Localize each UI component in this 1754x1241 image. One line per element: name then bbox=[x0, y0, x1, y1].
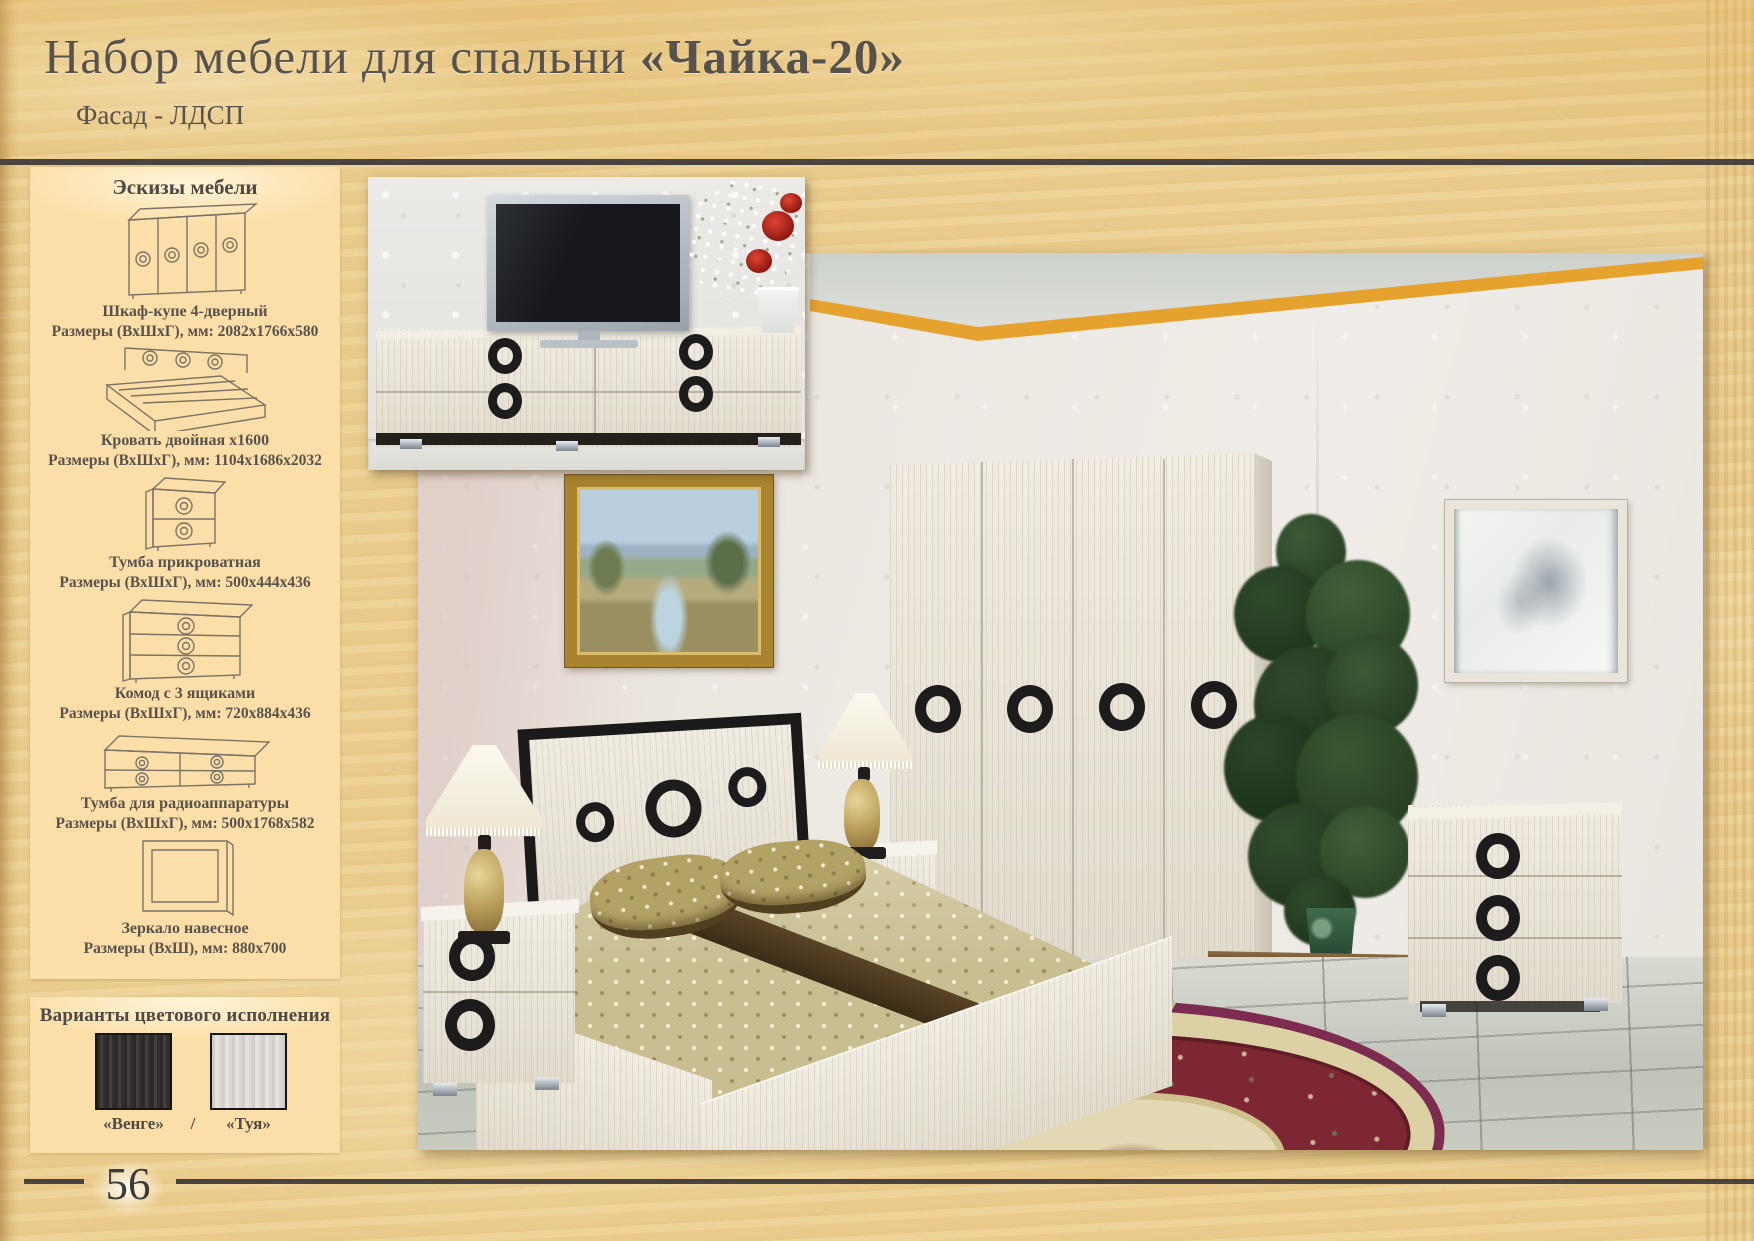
dresser-drawer-seam bbox=[1408, 937, 1622, 939]
sketch-label: Тумба прикроватная bbox=[30, 553, 340, 573]
headboard-ring bbox=[644, 778, 703, 839]
tv-stand-plinth bbox=[376, 433, 801, 445]
wardrobe-ring-handle bbox=[1099, 683, 1145, 731]
photo-ficus-plant bbox=[1218, 508, 1438, 978]
page-number: 56 bbox=[84, 1158, 172, 1210]
tv-screen bbox=[496, 204, 680, 322]
nightstand-sketch-icon bbox=[125, 473, 245, 553]
lamp-base bbox=[464, 849, 504, 933]
inset-flat-tv bbox=[487, 195, 689, 331]
wardrobe-ring-handle bbox=[1007, 685, 1053, 733]
swatch-wenge-label: «Венге» bbox=[95, 1114, 172, 1134]
tv-stand-ring-handle bbox=[488, 338, 522, 374]
tv-stand-foot bbox=[758, 437, 780, 447]
photo-wall-mirror bbox=[1445, 500, 1627, 682]
sketch-label: Шкаф-купе 4-дверный bbox=[30, 302, 340, 322]
footer-rule-right bbox=[176, 1179, 1754, 1184]
nightstand-ring-handle bbox=[445, 999, 495, 1051]
swatch-separator: / bbox=[178, 1114, 208, 1134]
sketch-dims: Размеры (ВхШхГ), мм: 720x884x436 bbox=[30, 704, 340, 723]
dresser-ring-handle bbox=[1476, 955, 1520, 1001]
sketch-dims: Размеры (ВхШхГ), мм: 2082x1766x580 bbox=[30, 322, 340, 341]
lamp-base bbox=[844, 779, 880, 851]
sketch-dims: Размеры (ВхШхГ), мм: 500x1768x582 bbox=[30, 814, 340, 833]
sketch-item-wardrobe: Шкаф-купе 4-дверный Размеры (ВхШхГ), мм:… bbox=[30, 202, 340, 341]
inset-flower-arrangement bbox=[688, 179, 805, 339]
headboard-ring bbox=[727, 766, 767, 808]
tv-stand-foot bbox=[556, 441, 578, 451]
lamp-foot bbox=[458, 931, 510, 944]
sketches-panel-header: Эскизы мебели bbox=[30, 167, 340, 200]
photo-wall-painting bbox=[565, 475, 773, 667]
tv-stand-ring-handle bbox=[488, 383, 522, 419]
sketch-item-tv-stand: Тумба для радиоаппаратуры Размеры (ВхШхГ… bbox=[30, 726, 340, 833]
nightstand-foot bbox=[433, 1083, 457, 1096]
footer-rule-left bbox=[24, 1179, 84, 1184]
tv-base bbox=[540, 340, 638, 348]
swatch-labels-row: «Венге» / «Туя» bbox=[30, 1114, 340, 1144]
sketch-item-mirror: Зеркало навесное Размеры (ВхШ), мм: 880x… bbox=[30, 835, 340, 958]
photo-dresser bbox=[1408, 805, 1622, 1017]
sketch-label: Кровать двойная х1600 bbox=[30, 431, 340, 451]
sketch-label: Комод с 3 ящиками bbox=[30, 684, 340, 704]
tv-stand-foot bbox=[400, 439, 422, 449]
color-variants-panel: Варианты цветового исполнения «Венге» / … bbox=[30, 997, 340, 1153]
flower-pot bbox=[754, 287, 802, 333]
tv-stand-inset-photo bbox=[368, 177, 805, 470]
page-right-wood-streak bbox=[1706, 0, 1754, 1241]
catalog-page: Набор мебели для спальни «Чайка-20» Фаса… bbox=[0, 0, 1754, 1241]
photo-right-table-lamp bbox=[814, 693, 914, 863]
color-swatches-row bbox=[30, 1033, 340, 1110]
red-poppy-flower bbox=[780, 193, 802, 213]
page-header: Набор мебели для спальни «Чайка-20» Фаса… bbox=[0, 0, 1754, 159]
wardrobe-ring-handle bbox=[915, 685, 961, 733]
dresser-shadow bbox=[1420, 1001, 1600, 1012]
wardrobe-door-seam bbox=[1072, 459, 1074, 967]
swatch-tuya bbox=[210, 1033, 287, 1110]
sketch-dims: Размеры (ВхШхГ), мм: 1104x1686x2032 bbox=[30, 451, 340, 470]
sketch-label: Тумба для радиоаппаратуры bbox=[30, 794, 340, 814]
page-left-wood-streak bbox=[0, 0, 18, 1241]
photo-left-table-lamp bbox=[424, 745, 546, 955]
sketch-dims: Размеры (ВхШхГ), мм: 500x444x436 bbox=[30, 573, 340, 592]
double-bed-sketch-icon bbox=[95, 343, 275, 431]
sketch-dims: Размеры (ВхШ), мм: 880x700 bbox=[30, 939, 340, 958]
tv-stand-ring-handle bbox=[679, 334, 713, 370]
page-title: Набор мебели для спальни «Чайка-20» bbox=[44, 28, 905, 85]
dresser-drawer-seam bbox=[1408, 875, 1622, 877]
swatch-wenge bbox=[95, 1033, 172, 1110]
nightstand-drawer-seam bbox=[423, 991, 575, 993]
dresser-ring-handle bbox=[1476, 833, 1520, 879]
sketch-item-dresser: Комод с 3 ящиками Размеры (ВхШхГ), мм: 7… bbox=[30, 594, 340, 723]
page-subtitle: Фасад - ЛДСП bbox=[76, 100, 244, 131]
dresser-ring-handle bbox=[1476, 895, 1520, 941]
dresser-foot bbox=[1422, 1004, 1446, 1017]
mirror-sketch-icon bbox=[125, 835, 245, 919]
header-divider-rule bbox=[0, 159, 1754, 165]
tv-stand-divider bbox=[594, 337, 596, 433]
swatch-tuya-label: «Туя» bbox=[210, 1114, 287, 1134]
wardrobe-door-seam bbox=[1163, 459, 1165, 967]
sketch-label: Зеркало навесное bbox=[30, 919, 340, 939]
furniture-sketches-panel: Эскизы мебели Шкаф-купе 4-дверный Размер… bbox=[30, 167, 340, 979]
page-title-product-name: «Чайка-20» bbox=[640, 29, 905, 84]
tv-stand-sketch-icon bbox=[93, 726, 278, 794]
sketch-item-bed: Кровать двойная х1600 Размеры (ВхШхГ), м… bbox=[30, 343, 340, 470]
dresser-foot bbox=[1584, 998, 1608, 1011]
wardrobe-sketch-icon bbox=[100, 202, 270, 302]
dresser-sketch-icon bbox=[110, 594, 260, 684]
tv-stand-drawer-seam bbox=[376, 391, 801, 393]
red-poppy-flower bbox=[746, 249, 772, 273]
headboard-ring bbox=[575, 801, 615, 843]
sketch-item-nightstand: Тумба прикроватная Размеры (ВхШхГ), мм: … bbox=[30, 473, 340, 592]
tv-stand-ring-handle bbox=[679, 376, 713, 412]
red-poppy-flower bbox=[762, 211, 794, 241]
color-variants-header: Варианты цветового исполнения bbox=[30, 997, 340, 1027]
wardrobe-door-seam bbox=[981, 459, 983, 967]
page-title-prefix: Набор мебели для спальни bbox=[44, 29, 640, 84]
nightstand-foot bbox=[535, 1077, 559, 1090]
